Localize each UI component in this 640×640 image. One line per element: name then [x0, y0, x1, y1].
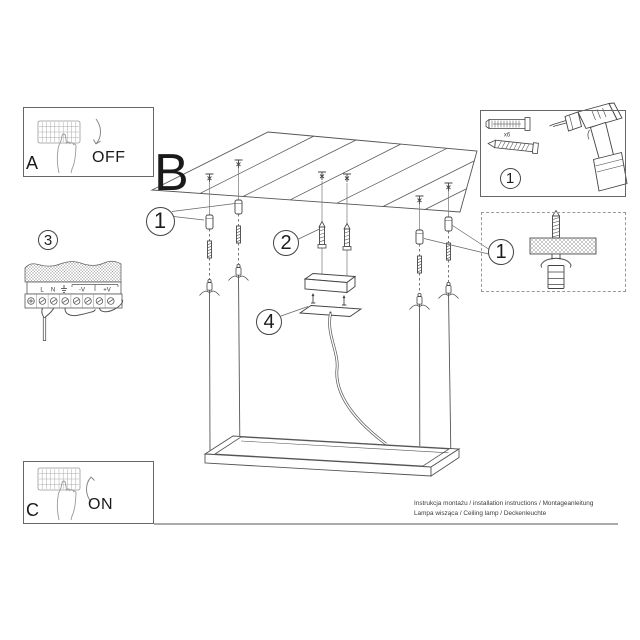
badge-step-wiring: 3 [38, 230, 58, 250]
suspension-assembly [439, 191, 459, 450]
badge-step-canopy-plate: 4 [256, 309, 282, 335]
badge-step-mount-detail: 1 [488, 239, 514, 265]
badge-step-canopy-screws: 2 [273, 230, 299, 256]
badge-step-suspension: 1 [146, 207, 175, 236]
badge-step-tools: 1 [500, 168, 521, 189]
terminal-label-n: N [51, 288, 55, 294]
ceiling-plane [152, 132, 477, 212]
suspension-assembly [410, 204, 430, 446]
section-label-a: A [26, 153, 38, 174]
footer-line-1: Instrukcja montażu / installation instru… [414, 499, 593, 509]
canopy-box [305, 274, 355, 293]
switch-state-off: OFF [92, 149, 126, 167]
line-art: L N -V +V x6 [0, 0, 640, 640]
terminal-label-minus-v: -V [79, 288, 85, 294]
section-label-b: B [154, 143, 189, 203]
footer-line-2: Lampa wisząca / Ceiling lamp / Deckenleu… [414, 509, 593, 519]
panel-c-box [23, 461, 154, 524]
terminal-label-plus-v: +V [103, 288, 111, 294]
panel-a-box [23, 107, 154, 177]
power-cord [330, 314, 386, 445]
leader-lines [172, 204, 489, 317]
lamp-frame [205, 436, 459, 476]
canopy-pin-icons [311, 294, 346, 305]
terminal-block: L N -V +V [25, 282, 122, 308]
suspension-assembly [200, 182, 220, 452]
cable-sheath [25, 261, 121, 282]
switch-state-on: ON [88, 496, 113, 514]
suspension-assembly [229, 168, 249, 438]
instruction-sheet: L N -V +V x6 [0, 0, 640, 640]
section-label-c: C [26, 500, 39, 521]
footer: Instrukcja montażu / installation instru… [414, 499, 593, 518]
